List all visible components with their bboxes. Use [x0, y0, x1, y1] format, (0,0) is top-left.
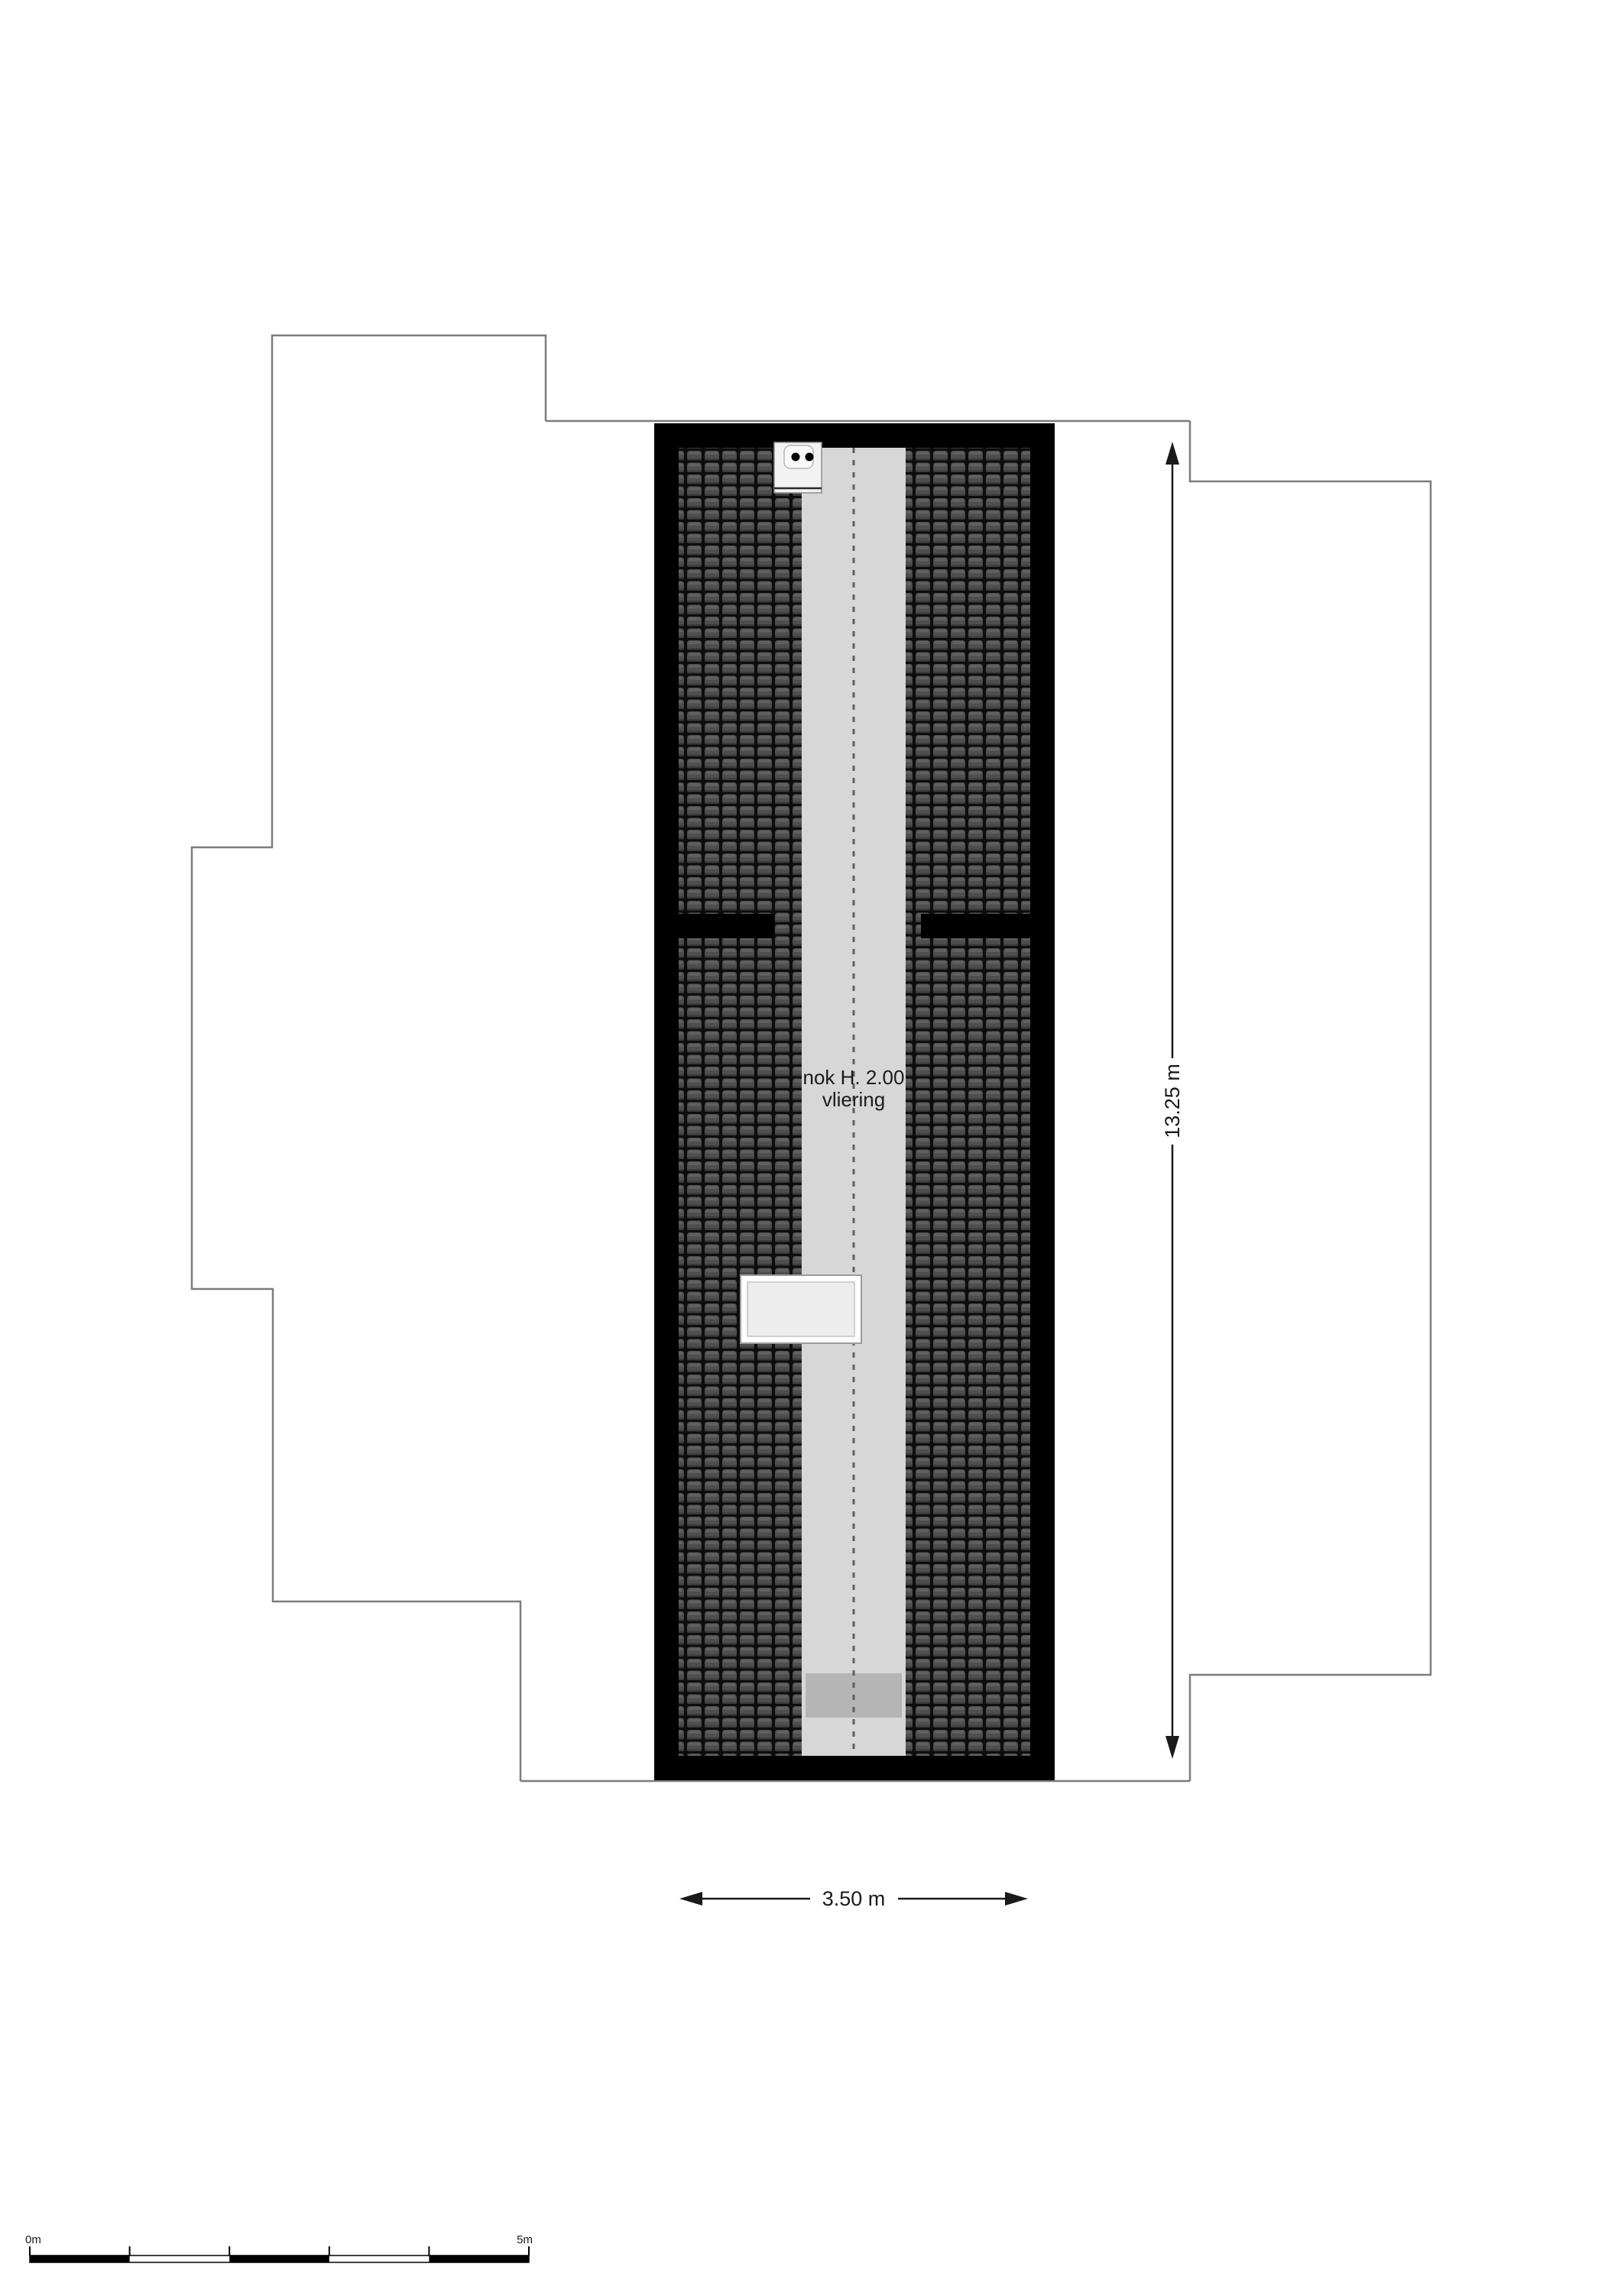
scale-bar-ticks: [30, 2246, 529, 2256]
interior-wall-stub-left: [654, 914, 774, 938]
scale-bar: 0m 5m: [25, 2233, 533, 2262]
outline-right: [1190, 421, 1431, 1781]
dimension-horizontal-label: 3.50 m: [822, 1887, 886, 1910]
dimension-vertical-label: 13.25 m: [1161, 1064, 1184, 1138]
vent-hole-left: [792, 453, 800, 461]
scale-bar-segment-1: [30, 2256, 130, 2262]
roof-slope-left: [679, 448, 802, 1756]
floorplan-drawing: nok H. 2.00 vliering 13.25 m 3.50 m 0m 5…: [0, 0, 1621, 2292]
arrowhead-up-icon: [1165, 442, 1179, 465]
interior-wall-stub-right: [921, 914, 1055, 938]
vent-hole-right: [806, 453, 814, 461]
dimension-horizontal: 3.50 m: [679, 1887, 1028, 1910]
arrowhead-down-icon: [1165, 1736, 1179, 1759]
arrowhead-left-icon: [679, 1892, 702, 1906]
roof-slope-right: [906, 448, 1030, 1756]
scale-bar-segment-3: [229, 2256, 329, 2262]
scale-bar-segment-5: [429, 2256, 529, 2262]
floorplan-canvas: nok H. 2.00 vliering 13.25 m 3.50 m 0m 5…: [0, 0, 1621, 2296]
room-label-line2: vliering: [822, 1088, 885, 1111]
skylight: [741, 1275, 861, 1343]
scale-bar-end-label: 5m: [517, 2233, 533, 2246]
arrowhead-right-icon: [1005, 1892, 1028, 1906]
vent-box: [774, 442, 822, 493]
outline-left: [192, 335, 546, 1781]
room-label-line1: nok H. 2.00: [803, 1066, 905, 1089]
dimension-vertical: 13.25 m: [1161, 442, 1184, 1759]
scale-bar-start-label: 0m: [25, 2233, 41, 2246]
